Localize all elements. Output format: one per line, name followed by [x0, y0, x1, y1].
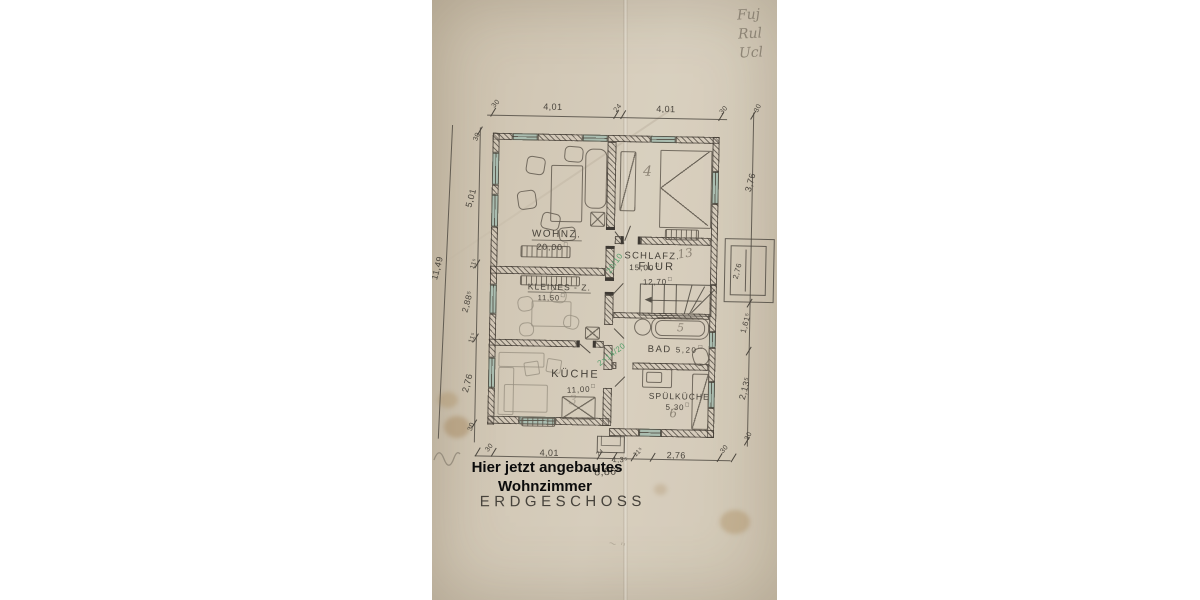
dim-label: 2,13⁵ [737, 376, 753, 401]
entrance-step-inner [601, 436, 621, 446]
dim-label: 2,76 [460, 372, 475, 393]
dim-label: 4,01 [656, 104, 675, 114]
stove-symbol [585, 326, 600, 339]
washbasin [634, 318, 651, 335]
room-area: 5,20 [676, 345, 698, 354]
room-area: 20,00 [537, 242, 563, 253]
room-label-wohnzimmer: WOHNZ. [532, 228, 582, 241]
screenshot-stage: Fuj Rul Ucl ~ '' [0, 0, 1200, 600]
room-area-kleines-zimmer: 11,50□ [538, 293, 566, 303]
window [711, 172, 719, 204]
dim-line-left-total [438, 125, 453, 439]
sink-basin [646, 372, 662, 383]
bed-diagonal [661, 151, 710, 189]
furniture-armchair [564, 145, 584, 163]
dim-label: 2,76 [667, 450, 686, 460]
furniture-chair [523, 360, 540, 376]
door-jamb [593, 341, 596, 348]
stair-arrow-head [645, 297, 652, 303]
wall-segment [708, 348, 716, 382]
dim-label: 4,01 [543, 102, 562, 112]
furniture-chair [519, 322, 535, 337]
stove-symbol [590, 212, 605, 227]
room-area: 11,50 [538, 293, 560, 302]
window [651, 136, 676, 143]
wall-segment [602, 388, 612, 426]
window [639, 429, 661, 437]
dim-label: 24 [613, 103, 624, 114]
wall-segment [490, 227, 498, 285]
radiator [521, 417, 555, 427]
door-jamb [638, 236, 641, 244]
dim-label: 3,76 [743, 172, 758, 193]
radiator [665, 229, 699, 241]
sqm-symbol: □ [564, 242, 569, 248]
room-name: SPÜLKÜCHE [649, 391, 710, 402]
pencil-room-number: 4 [643, 164, 652, 180]
door-leaf [615, 376, 626, 387]
wall-segment [612, 362, 616, 369]
room-label-kueche: KÜCHE [551, 368, 600, 381]
furniture-table [503, 384, 548, 413]
bed-diagonal [660, 188, 709, 226]
pencil-room-number: 3 [569, 393, 578, 408]
room-name: BAD [648, 344, 672, 355]
pencil-room-number: 5 [677, 321, 684, 334]
furniture-chair [562, 313, 581, 331]
dim-label: 30 [719, 105, 730, 116]
window [709, 332, 716, 348]
dim-line-left [474, 127, 481, 442]
dim-label-left-total: 11,49 [432, 255, 445, 281]
wall-segment [606, 142, 617, 230]
room-name: FLUR [638, 261, 675, 274]
dim-label: 2,88⁵ [460, 290, 475, 314]
sqm-symbol: □ [591, 384, 596, 390]
furniture-sofa [584, 148, 607, 208]
room-label-bad: BAD 5,20□ [648, 344, 704, 356]
room-area: 12,70 [643, 277, 667, 286]
sqm-symbol: □ [561, 293, 566, 299]
pencil-room-number: 6 [669, 406, 677, 420]
wall-segment [492, 185, 499, 195]
dim-label: 5,01 [464, 187, 479, 208]
dim-label: 4,01 [540, 448, 559, 458]
window [491, 195, 499, 227]
floor-title: ERDGESCHOSS [480, 493, 646, 510]
furniture-armchair [525, 155, 547, 176]
window [583, 134, 608, 141]
wall-segment [595, 341, 604, 348]
furniture-armchair [516, 189, 537, 210]
dim-label: 1,61⁵ [739, 312, 753, 335]
overlay-caption-line2: Wohnzimmer [460, 478, 630, 495]
wall-segment [487, 416, 519, 425]
room-name: WOHNZ. [532, 228, 582, 240]
wall-segment [490, 266, 605, 276]
door-leaf [614, 328, 625, 339]
floorplan-photo: Fuj Rul Ucl ~ '' [432, 0, 777, 600]
room-name: KÜCHE [551, 368, 600, 381]
furniture-table [550, 165, 583, 223]
window [489, 285, 497, 314]
wall-segment [712, 137, 720, 172]
dim-label: 30 [491, 98, 502, 109]
dim-line-top [487, 115, 727, 121]
window [488, 358, 496, 388]
pencil-room-number: 13 [677, 245, 694, 261]
sqm-symbol: □ [685, 402, 690, 408]
wall-segment [604, 295, 614, 325]
door-jamb [605, 278, 614, 281]
sqm-symbol: □ [668, 277, 673, 283]
room-area-flur: 12,70□ [643, 277, 673, 287]
door-leaf [624, 226, 631, 241]
room-label-spuelkueche: SPÜLKÜCHE [649, 391, 710, 402]
wall-segment [492, 133, 499, 153]
wall-segment [661, 429, 714, 438]
floorplan-drawing: 30 4,01 24 4,01 30 11,49 30 5,01 11⁵ 2,8… [432, 0, 777, 600]
door-jamb [606, 227, 615, 230]
wall-segment [488, 314, 496, 358]
wall-segment [489, 339, 577, 348]
wall-segment [538, 134, 583, 142]
room-name: KLEINES - Z. [528, 281, 591, 292]
dim-tick [731, 453, 737, 462]
overlay-caption-line1: Hier jetzt angebautes [462, 459, 632, 476]
window [513, 133, 538, 140]
furniture-wardrobe [619, 151, 636, 211]
window [492, 153, 500, 185]
dim-tick [650, 453, 656, 462]
kitchen-sink-unit [561, 396, 595, 420]
dim-label: 30 [744, 431, 754, 442]
room-area-wohnzimmer: 20,00□ [537, 242, 569, 253]
room-label-flur: FLUR [638, 261, 675, 274]
sqm-symbol: □ [698, 345, 703, 351]
door-jamb [606, 246, 615, 249]
door-leaf [613, 283, 623, 294]
door-leaf [579, 344, 590, 354]
